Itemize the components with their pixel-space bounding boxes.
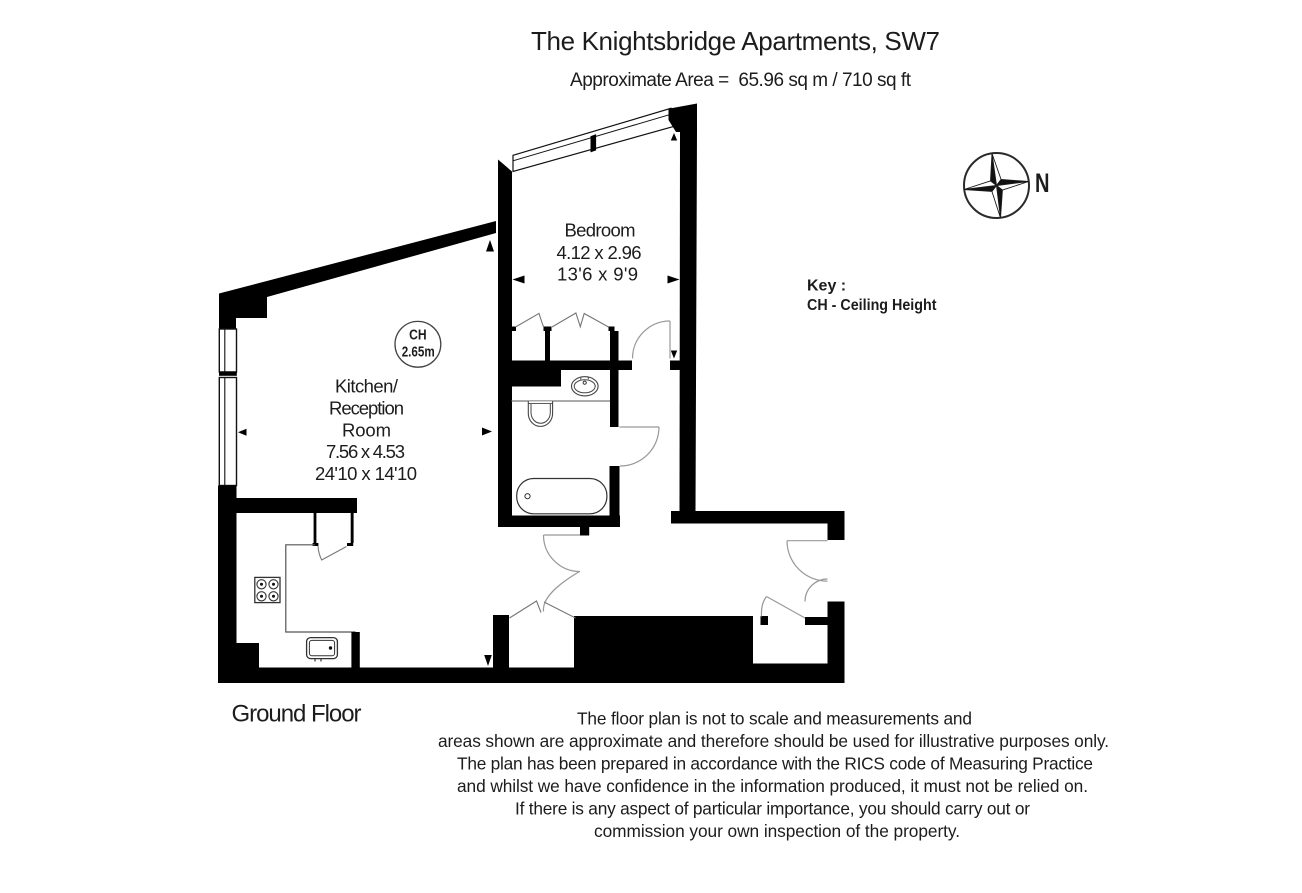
svg-text:commission your own inspection: commission your own inspection of the pr…	[594, 821, 960, 841]
svg-text:If there is any aspect of part: If there is any aspect of particular imp…	[515, 799, 1030, 819]
svg-text:CH: CH	[409, 328, 427, 344]
svg-text:2.65m: 2.65m	[402, 345, 435, 361]
svg-text:Room: Room	[342, 419, 391, 440]
svg-text:Approximate Area = 65.96 sq m: Approximate Area = 65.96 sq m / 710 sq f…	[570, 70, 912, 91]
svg-text:Ground Floor: Ground Floor	[232, 701, 362, 728]
svg-text:CH - Ceiling Height: CH - Ceiling Height	[807, 297, 937, 314]
svg-text:Bedroom: Bedroom	[565, 220, 636, 241]
svg-text:13'6 x 9'9: 13'6 x 9'9	[557, 264, 638, 285]
svg-text:Reception: Reception	[329, 397, 404, 418]
svg-text:The Knightsbridge Apartments,: The Knightsbridge Apartments, SW7	[531, 26, 940, 56]
svg-text:The plan has been prepared in: The plan has been prepared in accordance…	[457, 754, 1093, 774]
svg-text:4.12 x 2.96: 4.12 x 2.96	[557, 242, 642, 263]
svg-text:24'10 x 14'10: 24'10 x 14'10	[315, 463, 417, 484]
svg-text:Key :: Key :	[807, 278, 846, 295]
svg-text:7.56 x 4.53: 7.56 x 4.53	[326, 441, 405, 462]
svg-text:The floor plan is not to scale: The floor plan is not to scale and measu…	[577, 709, 972, 729]
svg-text:N: N	[1035, 168, 1050, 198]
svg-text:areas shown are approximate an: areas shown are approximate and therefor…	[438, 731, 1109, 751]
svg-text:and whilst we have confidence: and whilst we have confidence in the inf…	[457, 776, 1088, 796]
svg-text:Kitchen/: Kitchen/	[335, 376, 399, 397]
